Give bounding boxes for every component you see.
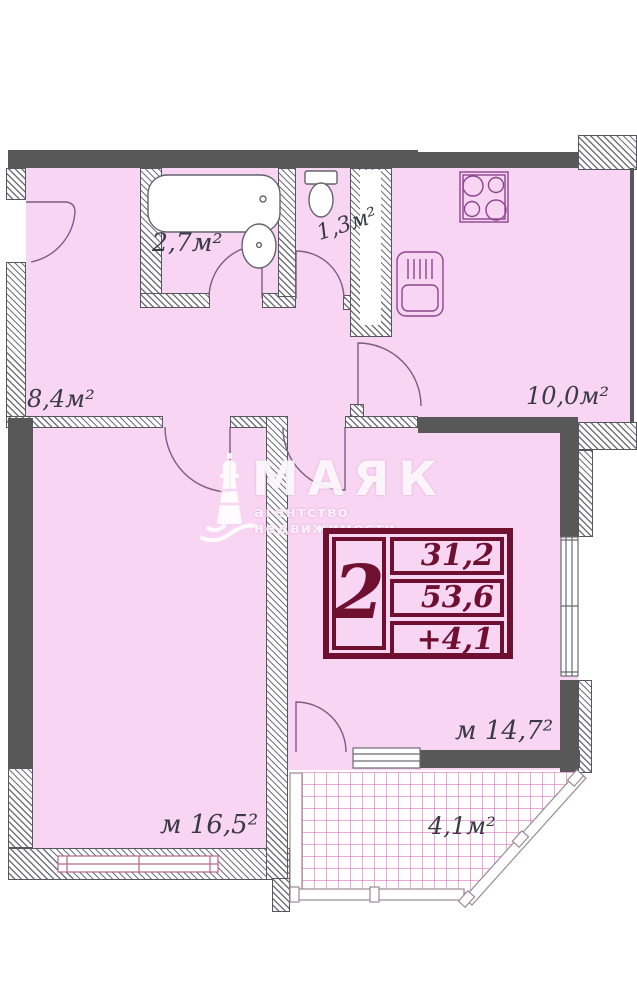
wall-living-top: [418, 417, 578, 433]
wall-hatch-hall-right-seg: [345, 416, 418, 428]
wall-balcony-top: [420, 750, 580, 768]
areas-column: 31,2 53,6 +4,1: [390, 537, 504, 650]
wall-hatch-bottom-band: [8, 848, 290, 880]
living-area-value: 31,2: [421, 541, 494, 571]
balcony-rail-left: [290, 773, 302, 899]
wall-hatch-bath-bottom: [140, 293, 210, 308]
wall-hatch-balcony-pillar: [272, 878, 290, 912]
wall-left-lower: [8, 418, 33, 768]
extra-area-value: +4,1: [417, 625, 494, 655]
rooms-count: 2: [333, 560, 385, 627]
brand-name: МАЯК: [252, 452, 446, 507]
wall-top-kitchen: [418, 152, 578, 168]
wall-hatch-left-top: [6, 168, 26, 200]
wall-hatch-left-mid: [6, 262, 26, 418]
hallway-area-label: 8,4м²: [27, 385, 95, 413]
total-area-value: 53,6: [421, 583, 494, 613]
bedroom-area-label: м 16,5²: [160, 810, 258, 840]
balcony-area-label: 4,1м²: [428, 812, 496, 840]
wall-right-pillar-upper: [560, 433, 578, 537]
bathroom-area-label: 2,7м²: [152, 228, 223, 257]
living-area-label: м 14,7²: [455, 716, 553, 746]
living-area-cell: 31,2: [390, 537, 504, 575]
rooms-count-cell: 2: [332, 537, 386, 650]
balcony-rail-post: [290, 887, 299, 902]
floor-plan: 2,7м² 1,3м² 8,4м² 10,0м² м 16,5² м 14,7²…: [0, 0, 637, 1000]
vent-shaft-interior: [360, 170, 381, 325]
wall-hatch-right-outer-band: [578, 422, 637, 450]
apartment-summary-box: 2 31,2 53,6 +4,1: [323, 528, 513, 659]
wall-hatch-right-outer-upper: [578, 450, 593, 537]
wall-hatch-top-right-block: [578, 135, 637, 170]
wall-hatch-right-outer-lower: [578, 680, 592, 773]
wall-hatch-bath-wc-divider: [278, 168, 296, 297]
total-area-cell: 53,6: [390, 579, 504, 617]
wall-hatch-left-bottom: [8, 768, 33, 848]
kitchen-area-label: 10,0м²: [526, 382, 609, 410]
wall-top-left: [8, 150, 418, 168]
extra-area-cell: +4,1: [390, 621, 504, 659]
wall-kitchen-right-edge: [630, 168, 634, 422]
